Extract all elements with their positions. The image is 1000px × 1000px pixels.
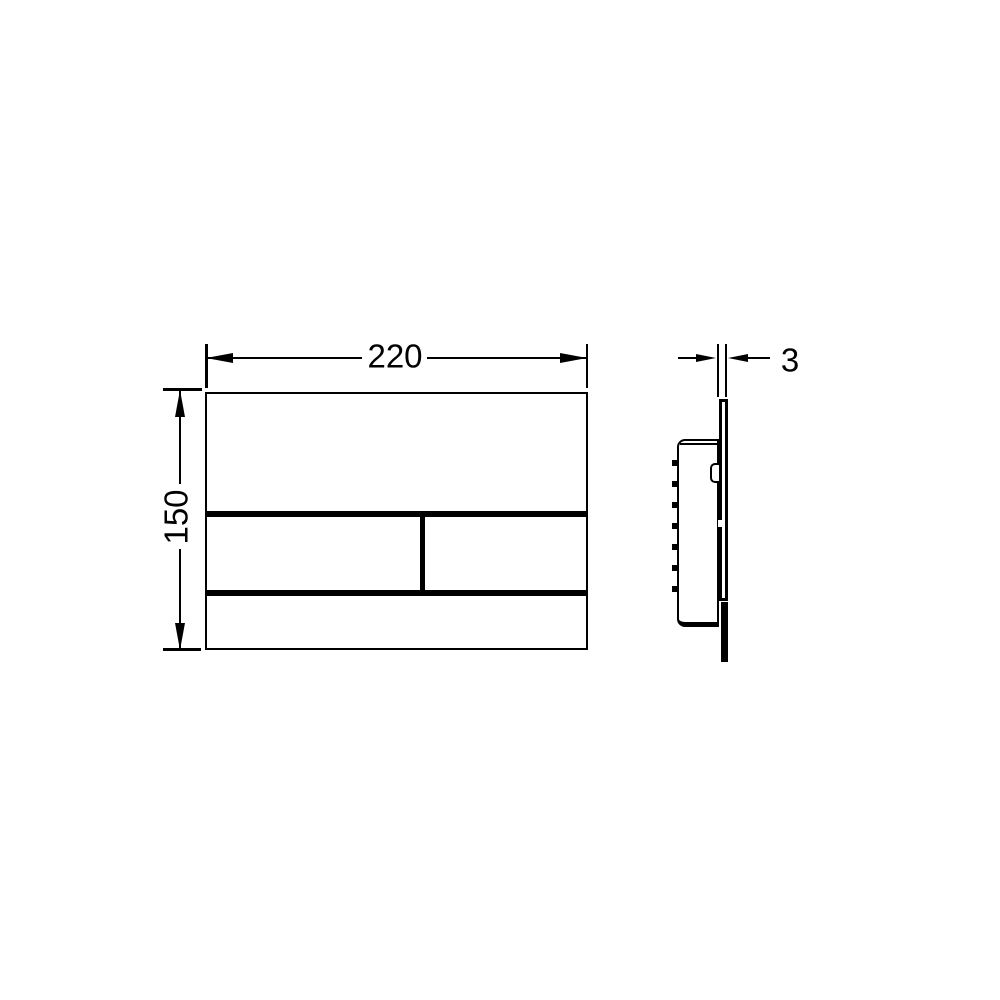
arrowhead-left-icon	[728, 354, 748, 362]
thickness-dimension-label: 3	[781, 344, 799, 377]
dimension-line-segment	[678, 357, 696, 359]
dimension-line-segment	[747, 357, 770, 359]
extension-line-right	[725, 344, 727, 397]
technical-drawing-canvas: 220 150	[0, 0, 1000, 1000]
arrowhead-right-icon	[696, 354, 716, 362]
dimension-thickness: 3	[0, 0, 1000, 1000]
extension-line-left	[717, 344, 719, 397]
